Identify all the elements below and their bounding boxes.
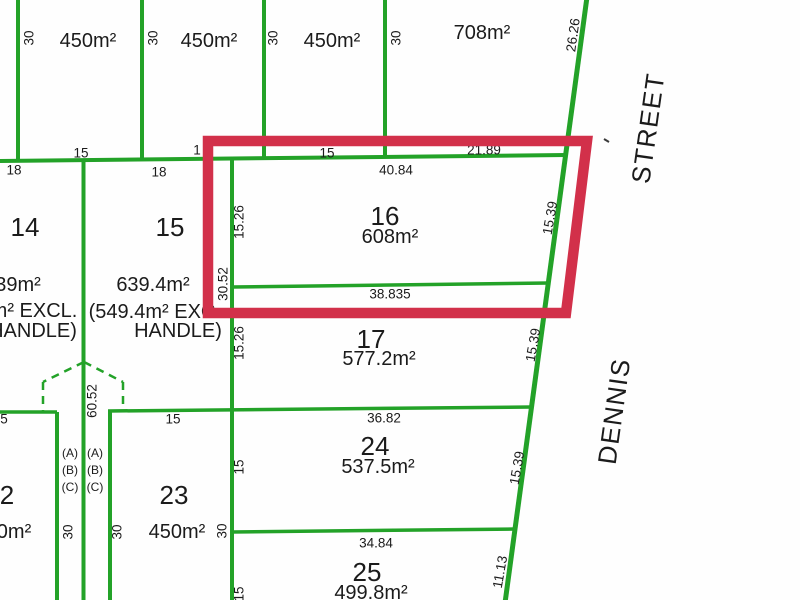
lot16-area: 608m² [362,226,419,248]
dim-handle-left-depth: 30 [61,524,76,539]
dim-lot16-top: 40.84 [379,163,413,178]
dim-lot15-side-30-52: 30.52 [216,267,231,301]
dim-lot23-frontage: 15 [165,412,180,427]
street-edge-line [505,0,587,600]
dim-lot17-left: 15.26 [232,326,247,360]
dim-lot22-frontage-fragment: 5 [0,412,8,427]
lot25-area: 499.8m² [334,582,408,600]
lot15-area: 639.4m² [116,274,190,296]
street-name-street: STREET [625,71,670,186]
dim-top-lot2-frontage-fragment: 1 [193,143,201,158]
dim-top-lot3-frontage: 15 [319,146,334,161]
lot-25-labels: 25 499.8m² 34.84 15 11.13 [232,536,511,600]
lot14-area-fragment: 39m² [0,274,41,296]
lot24-25-boundary [232,529,515,532]
lot17-area: 577.2m² [342,348,416,370]
dim-lot16-left: 15.26 [232,205,247,239]
dim-top-lot2-depth: 30 [146,30,161,45]
lot24-area: 537.5m² [341,456,415,478]
handle-left-easement-b: (B) [62,463,78,477]
top-lot2-area: 450m² [181,30,238,52]
lot14-number: 14 [11,212,40,242]
dim-top-lot1-frontage: 15 [73,146,88,161]
lot-boundary-lines [0,0,587,600]
lot-22-labels: 2 0m² 5 [0,412,32,544]
top-lot3-area: 450m² [304,30,361,52]
dim-top-lot4-depth: 30 [389,30,404,45]
dim-lot25-top: 34.84 [359,536,393,551]
lot17-24-boundary [108,407,532,411]
street-name-dennis: DENNIS [592,356,637,466]
lot23-area: 450m² [149,521,206,543]
lot14-excl-note-fragment: m² EXCL. [0,300,77,322]
dim-lot23-side-right: 30 [215,523,230,538]
lot22-number-fragment: 2 [0,480,14,510]
handle-strip-labels: 60.52 (A) (B) (C) (A) (B) (C) 30 30 [61,384,125,539]
lot15-number: 15 [156,212,185,242]
dim-top-lot3-depth: 30 [266,30,281,45]
dim-lot24-left: 15 [232,459,247,474]
lot-14-labels: 14 39m² m² EXCL. HANDLE) [0,212,77,342]
lot14-handle-note-fragment: HANDLE) [0,320,77,342]
dim-lot25-left: 15 [232,586,247,600]
lot-17-labels: 17 577.2m² 15.26 15.39 [232,324,544,370]
lot15-handle-note: HANDLE) [134,320,222,342]
lot23-number: 23 [160,480,189,510]
dim-handle-length: 60.52 [85,384,100,418]
survey-plan-screenshot: 30 450m² 30 450m² 30 450m² 30 708m² 15 1… [0,0,800,600]
top-lot4-area: 708m² [454,22,511,44]
dim-lot16-bottom: 38.835 [369,287,410,302]
lot-24-labels: 24 537.5m² 36.82 15 15.39 [232,411,528,486]
lot22-area-fragment: 0m² [0,521,32,543]
dim-lot24-top: 36.82 [367,411,401,426]
survey-tick [604,139,609,142]
lot-23-labels: 23 450m² 15 30 [149,412,230,544]
dim-lot24-right: 15.39 [507,450,528,486]
dim-boundary-seg-a: 18 [6,163,21,178]
dim-top-lot1-depth: 30 [22,30,37,45]
handle-left-easement-c: (C) [62,480,79,494]
handle-dashed-apex-left [43,362,84,382]
dim-handle-right-depth: 30 [110,524,125,539]
handle-right-easement-b: (B) [87,463,103,477]
cadastral-plan: 30 450m² 30 450m² 30 450m² 30 708m² 15 1… [0,0,800,600]
handle-right-easement-a: (A) [87,446,103,460]
top-lot1-area: 450m² [60,30,117,52]
dim-boundary-seg-b: 18 [151,165,166,180]
handle-left-easement-a: (A) [62,446,78,460]
handle-right-easement-c: (C) [87,480,104,494]
handle-dashed-apex-right [84,362,123,382]
